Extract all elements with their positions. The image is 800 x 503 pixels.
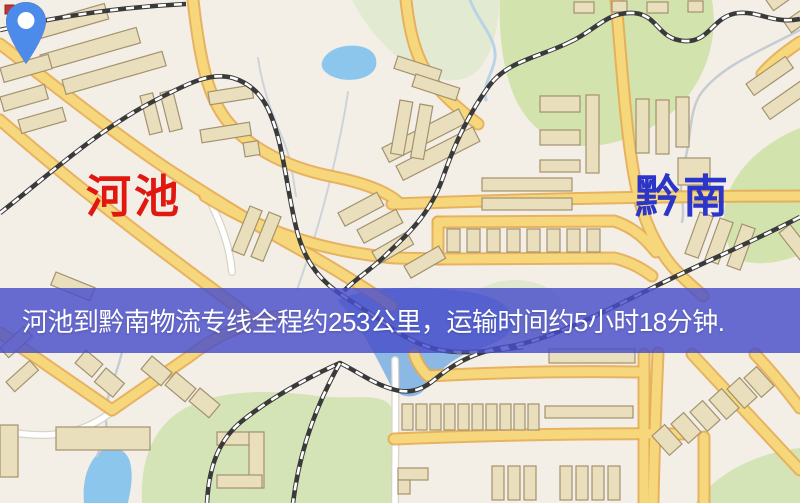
route-info-banner: 河池到黔南物流专线全程约253公里，运输时间约5小时18分钟. [0, 288, 800, 353]
origin-city-label: 河池 [86, 174, 182, 219]
destination-marker-pin[interactable] [0, 0, 52, 66]
map-canvas [0, 0, 800, 503]
map-view: 河池 黔南 河池到黔南物流专线全程约253公里，运输时间约5小时18分钟. [0, 0, 800, 503]
route-info-text: 河池到黔南物流专线全程约253公里，运输时间约5小时18分钟. [0, 302, 724, 339]
destination-city-label: 黔南 [635, 174, 731, 219]
